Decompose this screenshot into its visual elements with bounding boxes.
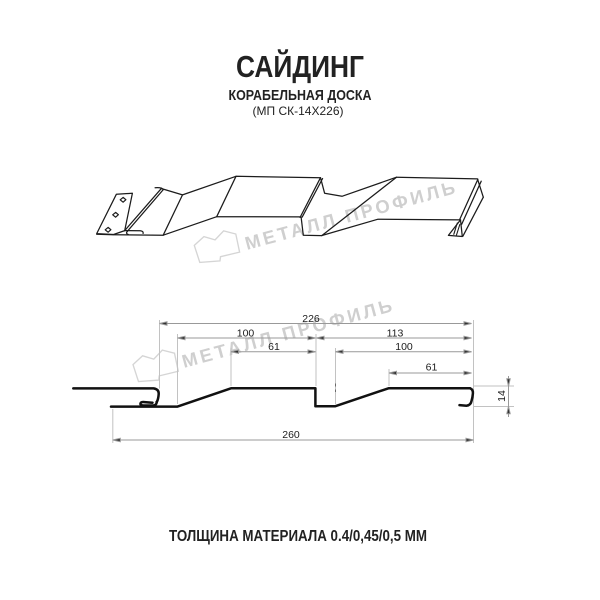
svg-text:14: 14	[496, 390, 508, 402]
svg-text:260: 260	[282, 429, 300, 441]
svg-text:61: 61	[426, 361, 438, 373]
svg-text:КОРАБЕЛЬНАЯ ДОСКА: КОРАБЕЛЬНАЯ ДОСКА	[229, 87, 372, 104]
svg-text:100: 100	[237, 327, 255, 339]
svg-text:61: 61	[268, 341, 280, 353]
svg-text:САЙДИНГ: САЙДИНГ	[236, 48, 364, 84]
svg-text:113: 113	[387, 327, 404, 339]
svg-text:226: 226	[302, 313, 320, 325]
svg-text:ТОЛЩИНА МАТЕРИАЛА 0.4/0,45/0,5: ТОЛЩИНА МАТЕРИАЛА 0.4/0,45/0,5 ММ	[169, 528, 427, 545]
svg-text:100: 100	[395, 341, 413, 353]
svg-text:(МП СК-14Х226): (МП СК-14Х226)	[253, 104, 344, 118]
